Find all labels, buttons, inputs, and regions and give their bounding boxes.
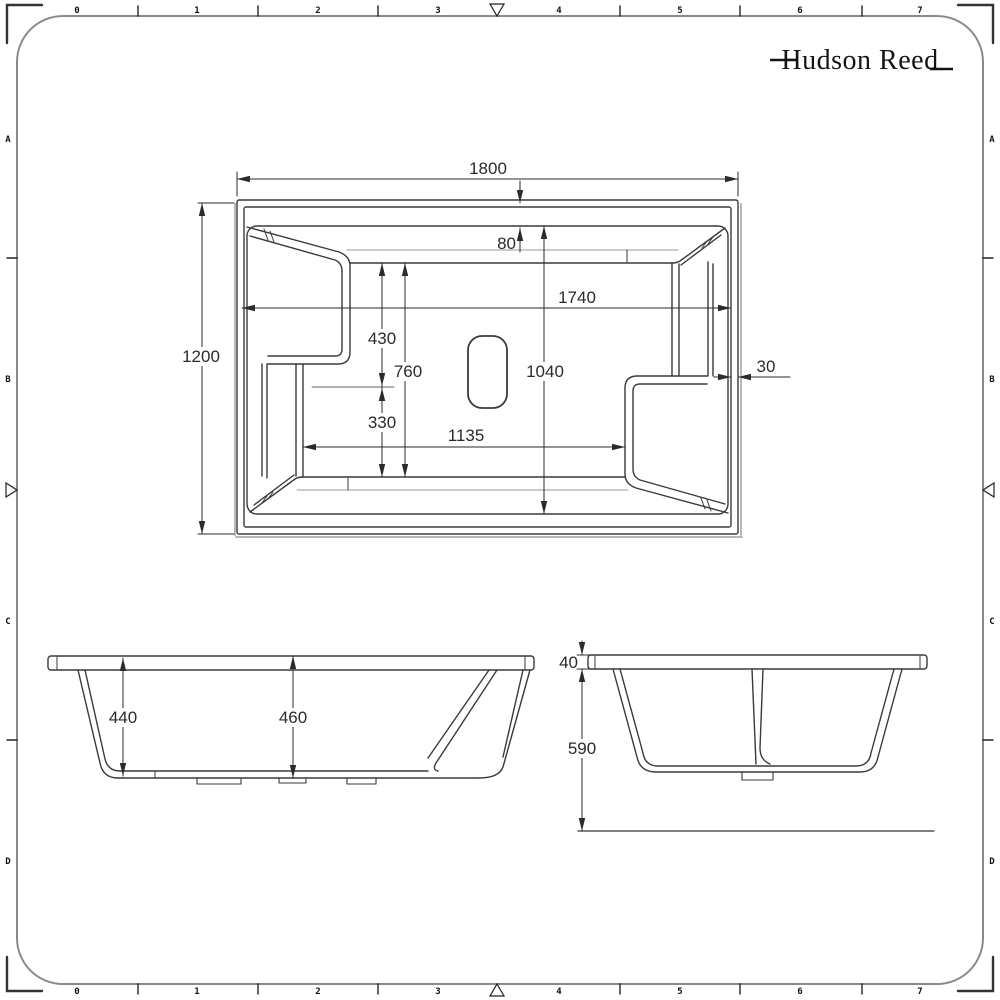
ruler-bottom-label: 4: [556, 987, 562, 997]
ruler-top-label: 0: [74, 6, 79, 16]
dim-label-rim-thickness: 40: [559, 653, 578, 672]
ruler-right-label: C: [989, 617, 994, 627]
dim-label-floor-length: 1135: [448, 426, 485, 445]
ruler-top-label: 4: [556, 6, 562, 16]
ruler-left-label: C: [5, 617, 10, 627]
ruler-left-label: B: [5, 375, 11, 385]
ruler-bottom-label: 7: [917, 987, 922, 997]
brand-logo: Hudson Reed: [770, 45, 953, 76]
ruler-top-label: 7: [917, 6, 922, 16]
ruler-left-label: A: [5, 135, 11, 145]
sheet-frame: 0 1 2 3 4 5 6 7 0 1 2 3 4 5 6 7 A B C D …: [5, 4, 995, 997]
technical-drawing: 0 1 2 3 4 5 6 7 0 1 2 3 4 5 6 7 A B C D …: [0, 0, 1000, 1000]
dim-label-internal-width: 1040: [526, 362, 564, 381]
dim-label-seat-depth: 430: [368, 329, 396, 348]
dim-label-centre-depth: 460: [279, 708, 307, 727]
ruler-right-label: B: [989, 375, 995, 385]
ruler-top-label: 2: [315, 6, 320, 16]
ruler-top-label: 1: [194, 6, 199, 16]
centre-mark-bottom-icon: [490, 984, 504, 996]
ruler-left-label: D: [5, 857, 11, 867]
ruler-top-label: 5: [677, 6, 682, 16]
dim-label-rim-inset: 80: [497, 234, 516, 253]
dim-label-end-depth: 440: [109, 708, 137, 727]
ruler-right-label: D: [989, 857, 995, 867]
ruler-bottom-label: 1: [194, 987, 199, 997]
ruler-top-label: 3: [435, 6, 440, 16]
dim-label-overall-height: 590: [568, 739, 596, 758]
ruler-top-label: 6: [797, 6, 802, 16]
dim-label-internal-length: 1740: [558, 288, 596, 307]
centre-mark-right-icon: [983, 483, 994, 497]
dim-label-wall-thickness: 30: [757, 357, 776, 376]
centre-mark-left-icon: [6, 483, 17, 497]
ruler-bottom-label: 0: [74, 987, 79, 997]
dim-label-seat-to-floor: 330: [368, 413, 396, 432]
ruler-right-label: A: [989, 135, 995, 145]
dim-label-floor-depth: 760: [394, 362, 422, 381]
dim-label-overall-length: 1800: [469, 159, 507, 178]
ruler-bottom-label: 3: [435, 987, 440, 997]
ruler-bottom-label: 2: [315, 987, 320, 997]
centre-mark-top-icon: [490, 4, 504, 16]
dim-label-overall-width: 1200: [182, 347, 220, 366]
ruler-bottom-label: 5: [677, 987, 682, 997]
drawing-sheet: 0 1 2 3 4 5 6 7 0 1 2 3 4 5 6 7 A B C D …: [0, 0, 1000, 1000]
ruler-bottom-label: 6: [797, 987, 802, 997]
brand-name: Hudson Reed: [781, 45, 938, 76]
